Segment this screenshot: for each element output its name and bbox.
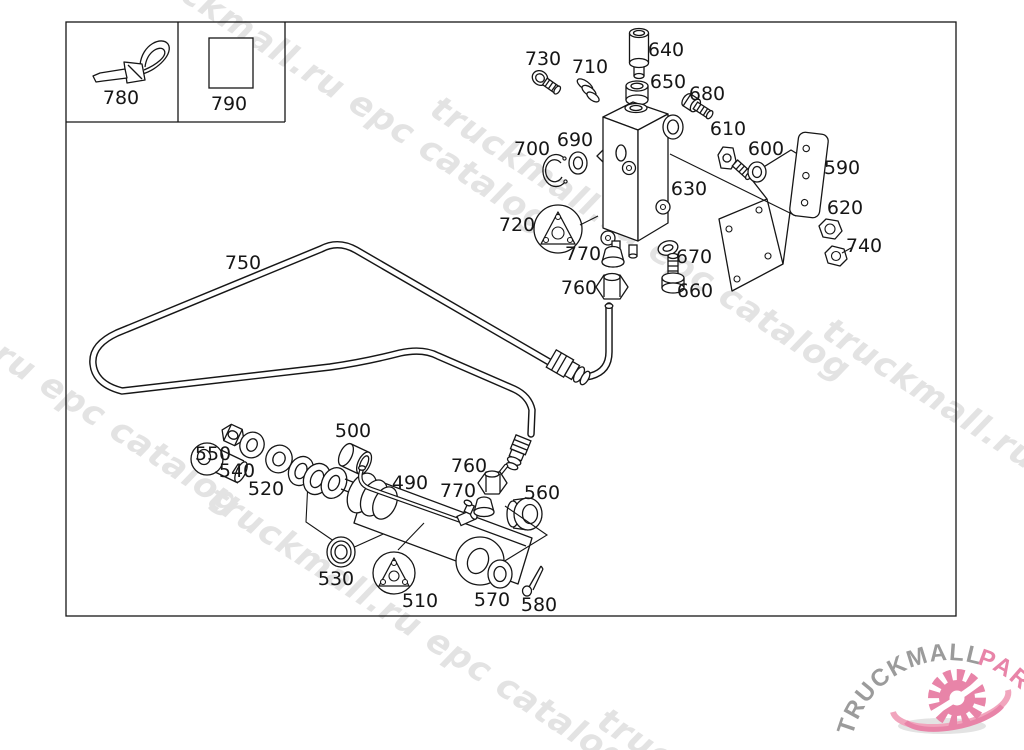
part-label-770-27: 770	[440, 480, 476, 502]
plug-710	[575, 77, 600, 104]
nut-740	[825, 246, 847, 266]
part-label-520-23: 520	[248, 478, 284, 500]
part-label-750-20: 750	[225, 252, 261, 274]
part-label-620-10: 620	[827, 197, 863, 219]
bolt-730	[529, 68, 563, 98]
part-label-650-5: 650	[650, 71, 686, 93]
part-label-780-0: 780	[103, 87, 139, 109]
truckmallparts-logo: TRUCKMALL PARTS	[832, 639, 1024, 738]
plug-770-upper	[602, 247, 624, 268]
part-label-720-15: 720	[499, 214, 535, 236]
part-label-560-28: 560	[524, 482, 560, 504]
cotter-pin-580	[523, 566, 544, 596]
part-label-760-17: 760	[561, 277, 597, 299]
nut-760-upper	[596, 274, 628, 300]
part-label-690-13: 690	[557, 129, 593, 151]
part-label-670-18: 670	[676, 246, 712, 268]
part-label-600-8: 600	[748, 138, 784, 160]
part-label-790-1: 790	[211, 93, 247, 115]
part-label-710-3: 710	[572, 56, 608, 78]
ring-690	[569, 152, 587, 174]
catalog-page: truckmall.ru epc catalog truckmall.ru ep…	[0, 0, 1024, 750]
part-label-740-11: 740	[846, 235, 882, 257]
leader-720	[580, 216, 598, 225]
part-label-700-12: 700	[514, 138, 550, 160]
pin-640	[630, 29, 649, 79]
part-label-570-31: 570	[474, 589, 510, 611]
part-label-610-7: 610	[710, 118, 746, 140]
washer-600	[748, 162, 766, 182]
seal-530	[327, 537, 355, 567]
parts-diagram: 7807907307106406506806106005906207407006…	[0, 0, 1024, 750]
part-label-530-29: 530	[318, 568, 354, 590]
hose-union-fitting	[546, 350, 593, 389]
part-label-760-26: 760	[451, 455, 487, 477]
plug-770-lower	[474, 497, 494, 517]
part-label-730-2: 730	[525, 48, 561, 70]
part-label-510-30: 510	[402, 590, 438, 612]
square-plate-icon	[209, 38, 253, 88]
part-label-500-24: 500	[335, 420, 371, 442]
washer-570	[488, 560, 512, 588]
part-label-490-25: 490	[392, 472, 428, 494]
part-label-640-4: 640	[648, 39, 684, 61]
part-label-680-6: 680	[689, 83, 725, 105]
part-label-590-9: 590	[824, 157, 860, 179]
nut-620	[819, 219, 842, 239]
part-label-630-14: 630	[671, 178, 707, 200]
flange-510	[373, 552, 415, 594]
part-label-770-16: 770	[565, 243, 601, 265]
part-label-660-19: 660	[677, 280, 713, 302]
bushing-650	[626, 81, 648, 105]
part-label-580-32: 580	[521, 594, 557, 616]
cable-tie-icon	[93, 41, 169, 83]
